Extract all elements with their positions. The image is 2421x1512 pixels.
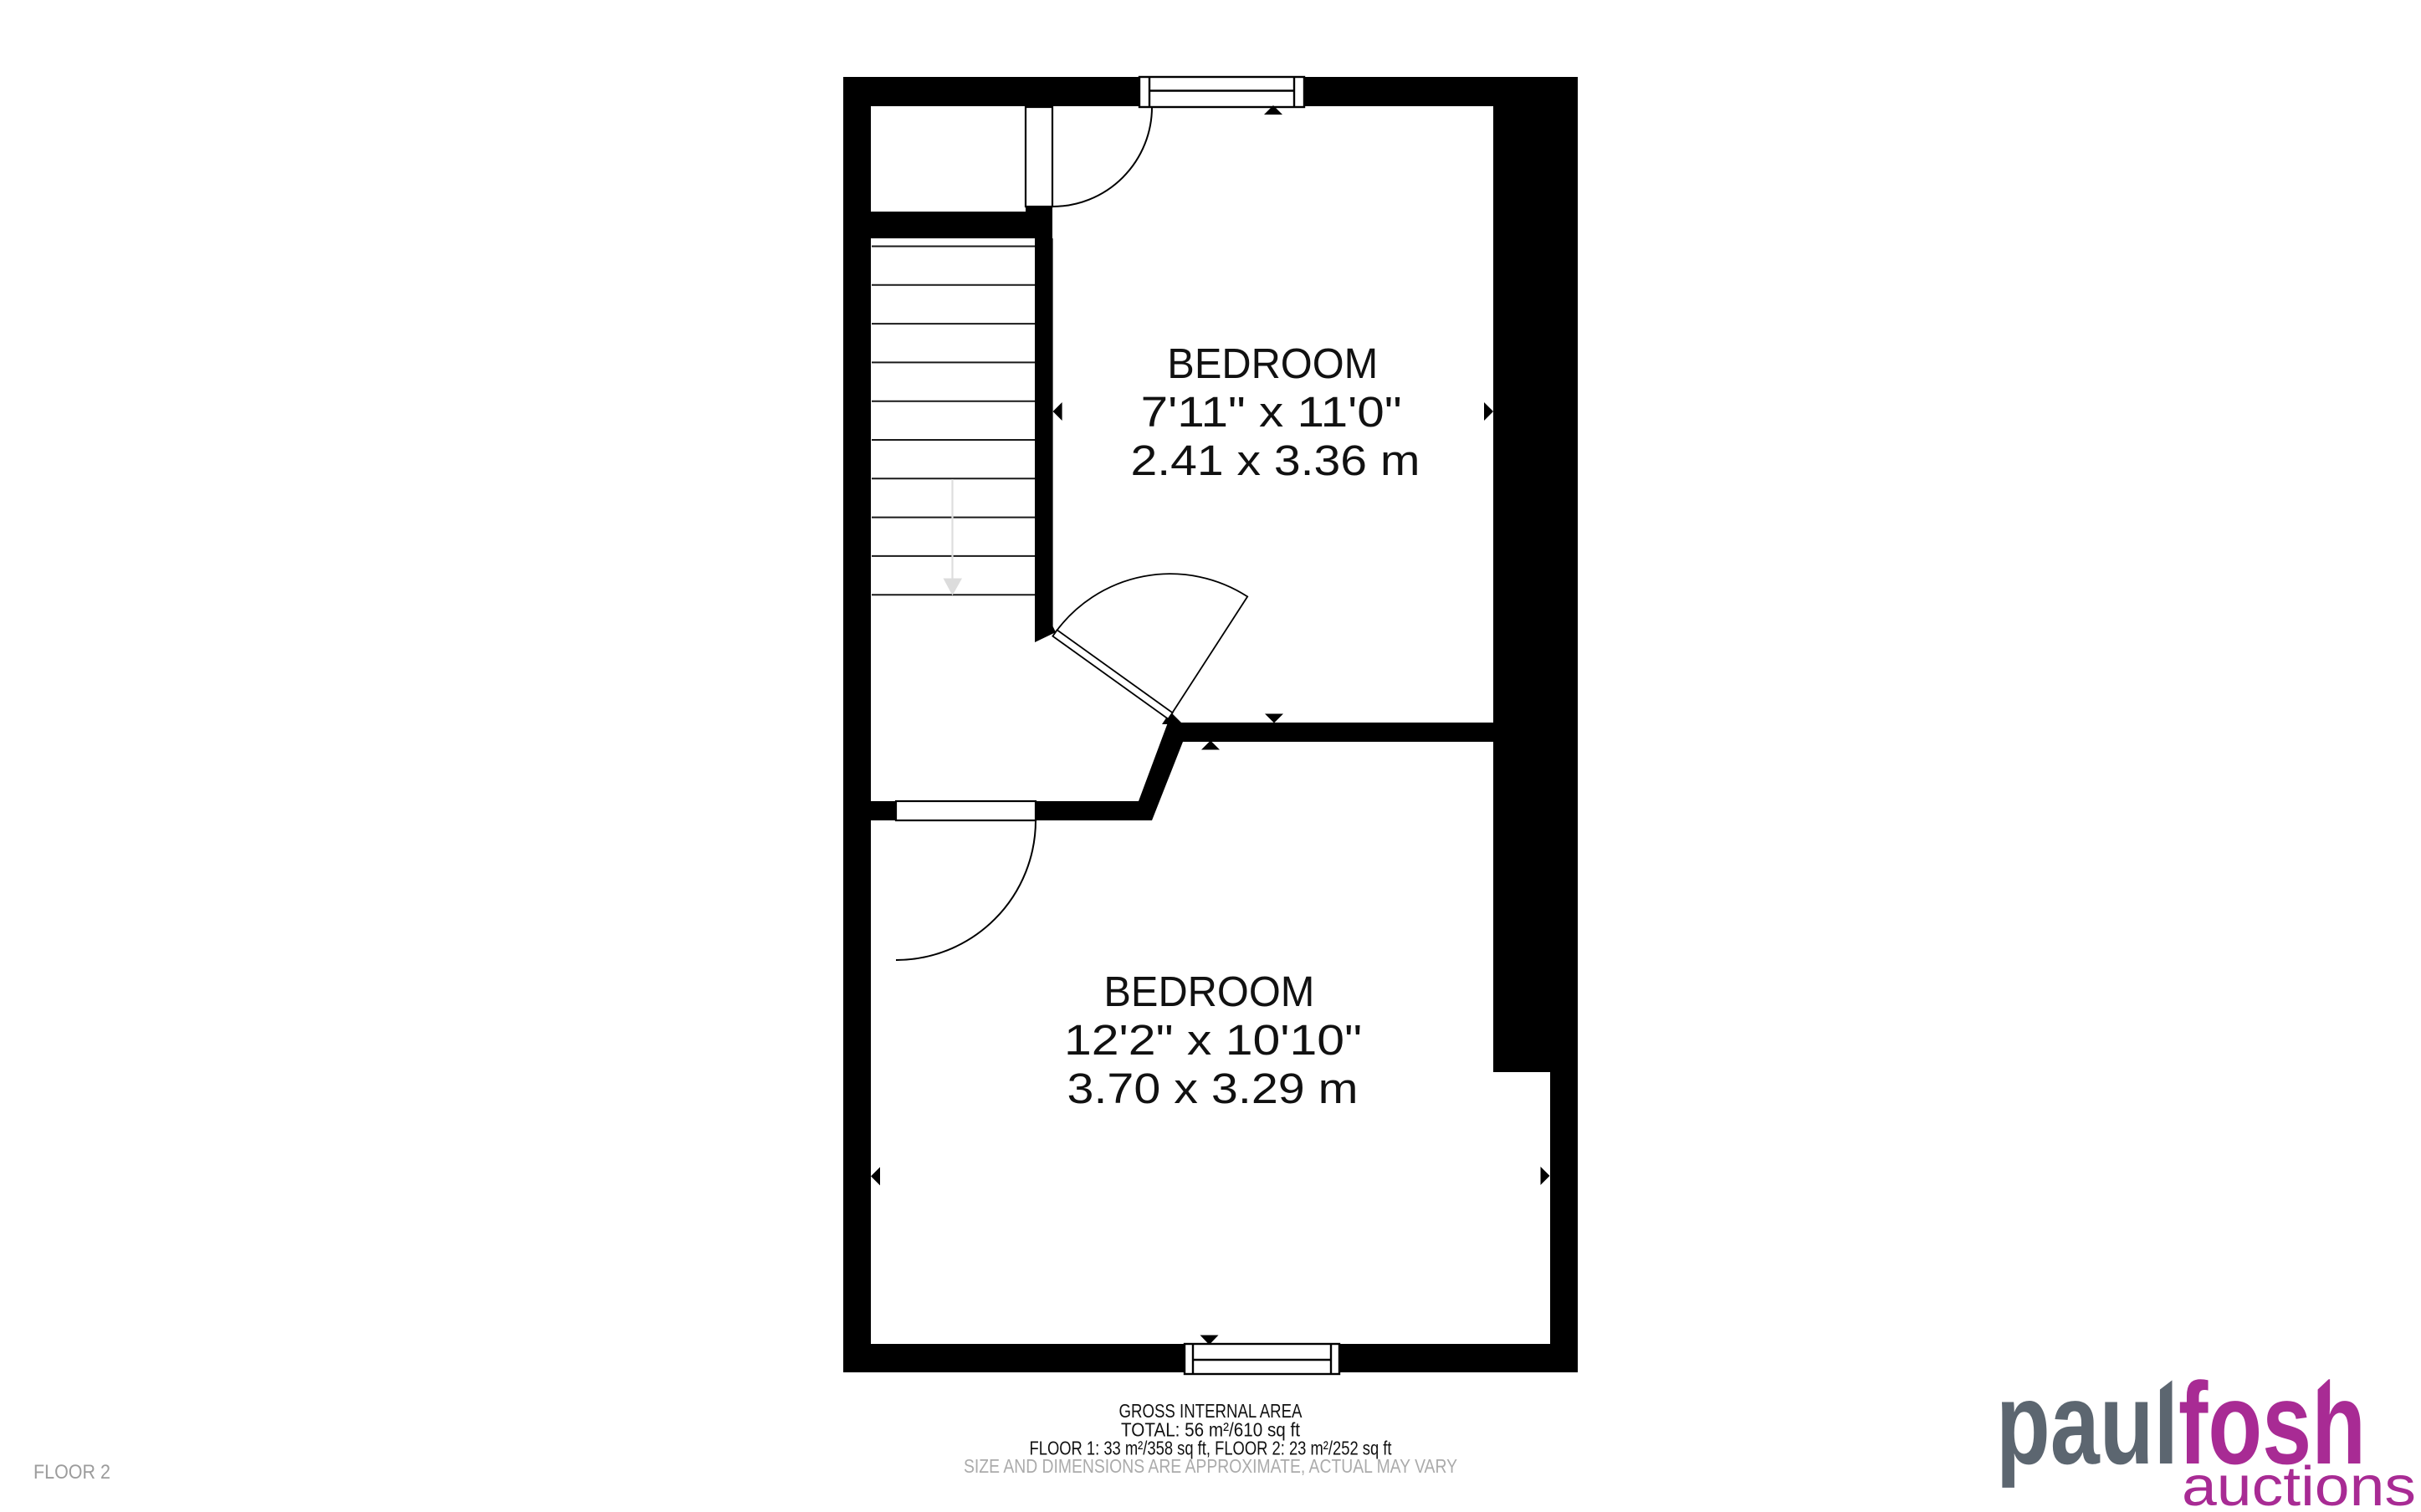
svg-text:7'11" x 11'0": 7'11" x 11'0" — [1141, 388, 1402, 436]
svg-text:BEDROOM: BEDROOM — [1103, 968, 1314, 1015]
svg-text:SIZE AND DIMENSIONS ARE APPROX: SIZE AND DIMENSIONS ARE APPROXIMATE, ACT… — [964, 1455, 1457, 1477]
svg-text:paul: paul — [1996, 1358, 2178, 1489]
svg-text:BEDROOM: BEDROOM — [1167, 340, 1378, 387]
svg-text:2.41 x 3.36 m: 2.41 x 3.36 m — [1131, 437, 1420, 484]
svg-text:FLOOR 2: FLOOR 2 — [33, 1461, 110, 1484]
svg-text:12'2" x 10'10": 12'2" x 10'10" — [1064, 1016, 1362, 1064]
svg-text:auctions: auctions — [2182, 1455, 2416, 1512]
svg-text:3.70 x 3.29 m: 3.70 x 3.29 m — [1067, 1065, 1359, 1112]
